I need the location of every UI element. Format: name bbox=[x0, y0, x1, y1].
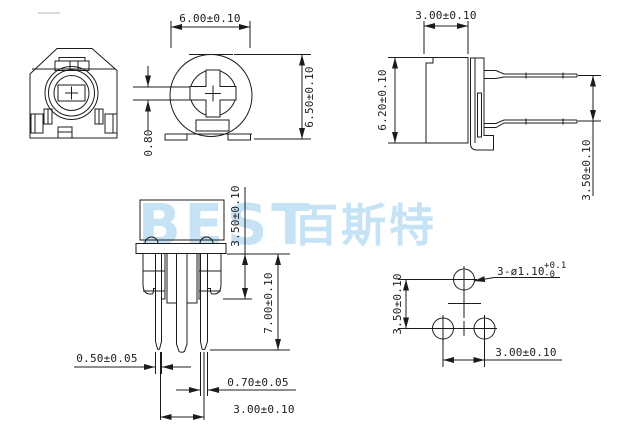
pcb-hole-callout-text: 3-ø1.10 bbox=[497, 265, 545, 278]
dim-topview-width-text: 6.00±0.10 bbox=[179, 12, 240, 25]
perspective-slot bbox=[58, 85, 85, 101]
dim-frontview-pinspacing-extension-lines bbox=[161, 352, 205, 420]
dim-sideview-height-text: 6.20±0.10 bbox=[376, 69, 389, 130]
side-view: 3.00±0.10 6.20±0.10 3.50±0.10 bbox=[376, 9, 601, 201]
side-view-upper-pin bbox=[484, 71, 577, 79]
dim-topview-width-extension-lines bbox=[171, 21, 250, 48]
pcb-crosshair-lines bbox=[430, 266, 497, 341]
dim-pcb-holepitch-text: 3.00±0.10 bbox=[495, 346, 556, 359]
dim-sideview-pitch-extension-lines bbox=[578, 76, 601, 122]
front-view-middle-block bbox=[167, 254, 197, 304]
dim-frontview-centerpin-text: 0.70±0.05 bbox=[227, 376, 288, 389]
perspective-right-foot bbox=[95, 109, 117, 133]
dim-frontview-bodyheight-text: 3.50±0.10 bbox=[229, 185, 242, 246]
perspective-view bbox=[30, 49, 117, 139]
dim-frontview-pinlength-text: 7.00±0.10 bbox=[262, 272, 275, 333]
dim-sideview-pitch-text: 3.50±0.10 bbox=[580, 139, 593, 200]
dim-pcb-holepitch-extension-lines bbox=[443, 340, 485, 367]
side-view-flange bbox=[471, 58, 494, 150]
pcb-hole-tolerance-lower-text: -0 bbox=[544, 270, 555, 280]
perspective-left-foot bbox=[31, 109, 52, 133]
dim-frontview-bodyheight-extension-lines bbox=[223, 254, 290, 299]
dim-topview-height-text: 6.50±0.10 bbox=[303, 66, 316, 127]
dim-topview-height-extension-lines bbox=[234, 55, 311, 140]
dim-frontview-outerpin-text: 0.50±0.05 bbox=[76, 352, 137, 365]
watermark-cjk-text: 百斯特 bbox=[293, 199, 437, 252]
front-view-left-pin bbox=[156, 254, 162, 350]
dim-sideview-width-text: 3.00±0.10 bbox=[415, 9, 476, 22]
dim-topview-slot-text: 0.80 bbox=[142, 129, 155, 156]
side-view-body bbox=[426, 58, 468, 144]
front-view-right-pin bbox=[201, 254, 208, 350]
dim-topview-slot-extension-lines bbox=[133, 87, 190, 100]
technical-drawing-canvas: BEST 百斯特 6.00±0.10 6.50±0.10 0.8 bbox=[0, 0, 639, 428]
front-view-right-block bbox=[199, 254, 221, 300]
pcb-pattern-view: 3-ø1.10 +0.1 -0 3.50±0.10 3.00±0.10 bbox=[391, 261, 566, 367]
dim-pcb-rowpitch-text: 3.50±0.10 bbox=[391, 273, 404, 334]
top-view-feet bbox=[165, 134, 252, 140]
top-view-stopper-rect bbox=[196, 120, 229, 131]
perspective-center-tab bbox=[58, 127, 72, 138]
technical-drawing-page: BEST 百斯特 6.00±0.10 6.50±0.10 0.8 bbox=[0, 0, 639, 428]
top-view: 6.00±0.10 6.50±0.10 0.80 bbox=[133, 12, 316, 157]
front-view-middle-pin bbox=[177, 254, 188, 353]
side-view-lower-pin bbox=[484, 119, 577, 128]
dim-frontview-pinspacing-text: 3.00±0.10 bbox=[233, 403, 294, 416]
